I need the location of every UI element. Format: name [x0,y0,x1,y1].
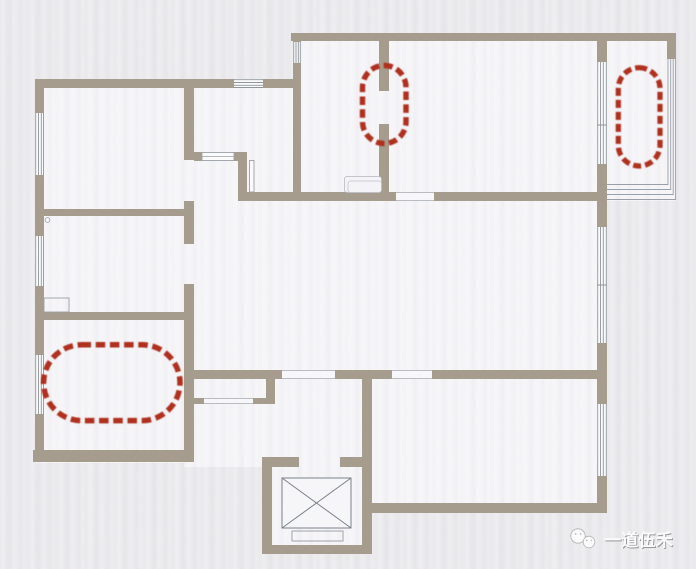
svg-text:一道伍禾: 一道伍禾 [604,530,673,550]
